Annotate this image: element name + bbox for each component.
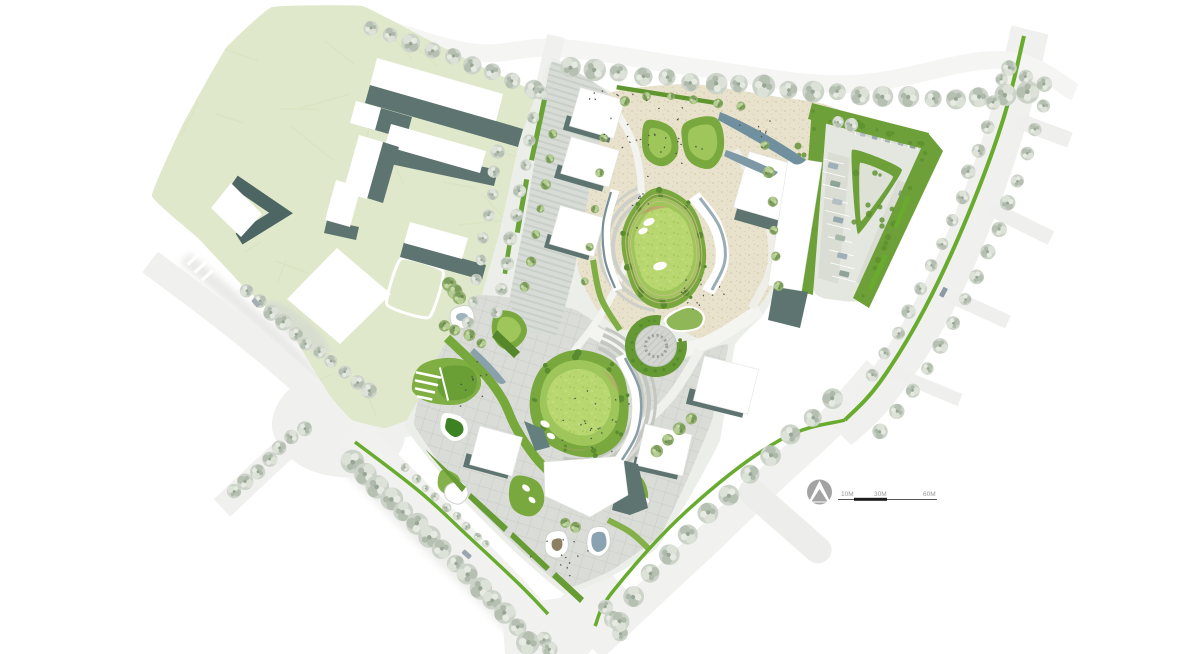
svg-text:30M: 30M [874, 491, 887, 498]
svg-text:60M: 60M [923, 491, 936, 498]
svg-text:10M: 10M [841, 491, 854, 498]
